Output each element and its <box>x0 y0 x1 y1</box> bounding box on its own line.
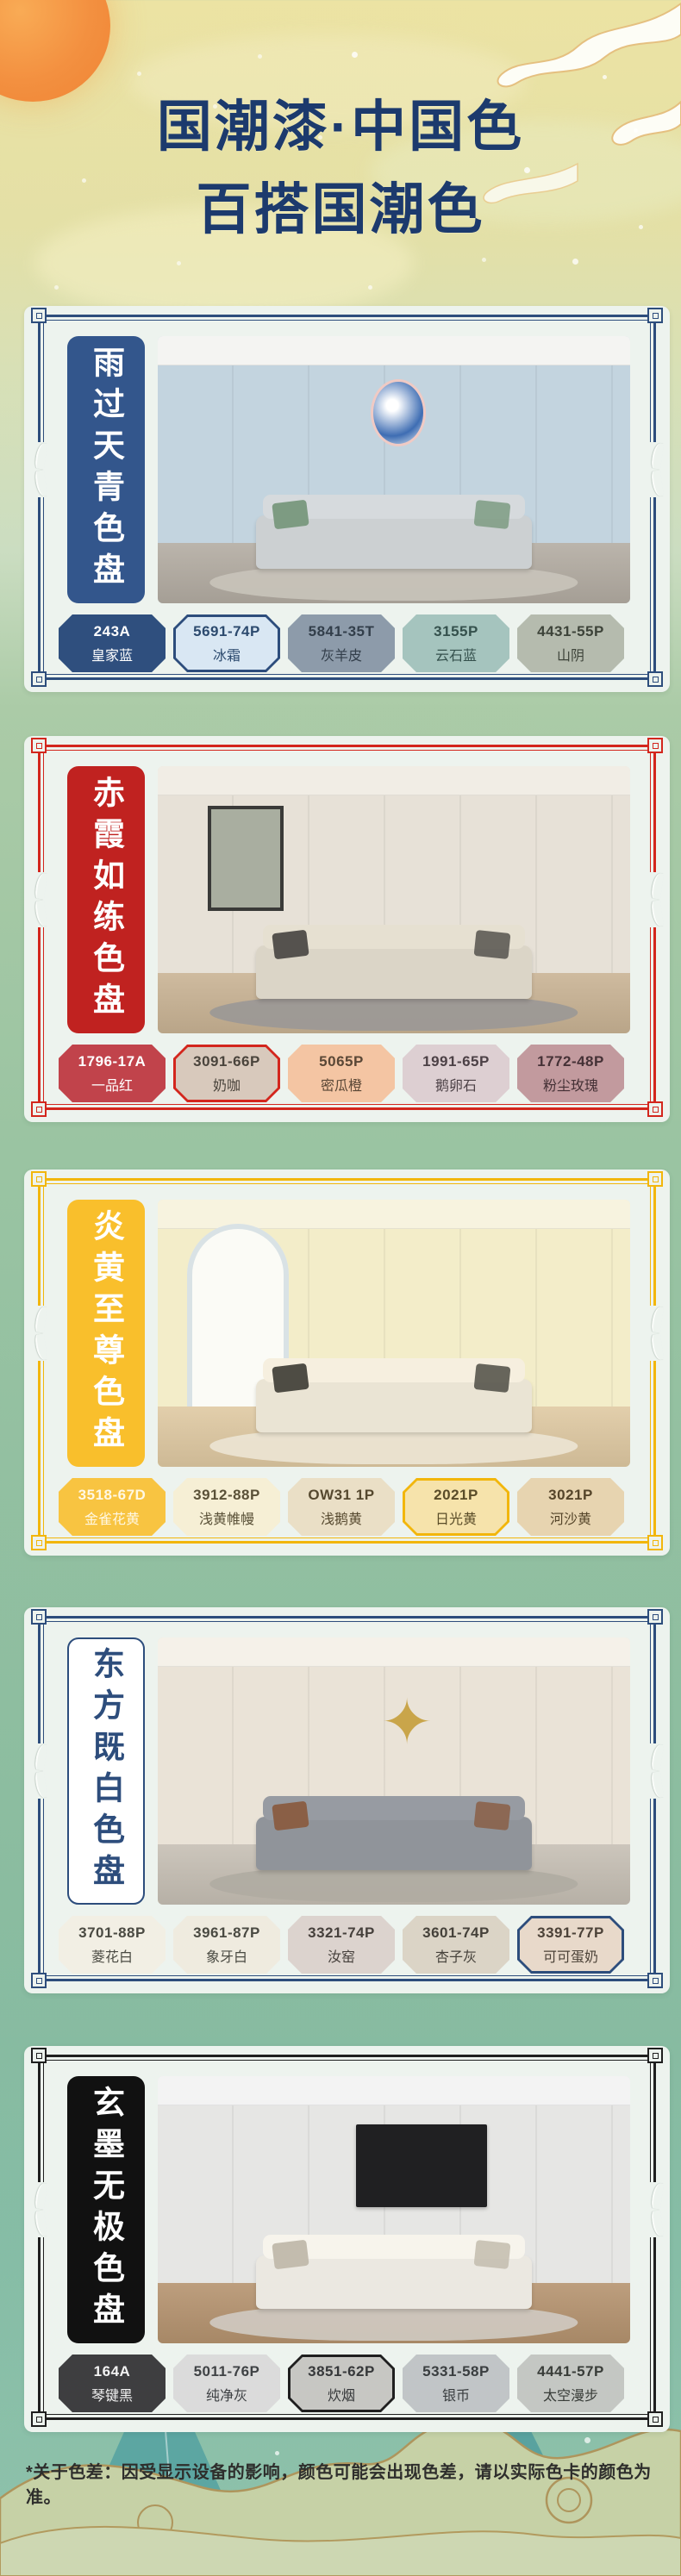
color-code: 4441-57P <box>537 2363 604 2380</box>
color-name: 山阴 <box>557 644 584 664</box>
wall-art <box>375 1691 439 1755</box>
sofa <box>256 1379 532 1432</box>
color-name: 粉尘玫瑰 <box>543 1074 598 1095</box>
palette-banner: 玄墨无极色盘 <box>67 2076 145 2343</box>
color-swatch: 3961-87P 象牙白 <box>173 1916 280 1974</box>
color-swatch: 3021P 河沙黄 <box>517 1478 624 1536</box>
color-swatch: 4441-57P 太空漫步 <box>517 2355 624 2412</box>
color-name: 可可蛋奶 <box>543 1945 598 1966</box>
color-swatch: 3155P 云石蓝 <box>403 614 509 672</box>
color-swatch-face: 3601-74P 杏子灰 <box>403 1916 509 1974</box>
color-name: 浅黄帷幔 <box>199 1507 254 1528</box>
color-swatch-face: 3961-87P 象牙白 <box>173 1916 280 1974</box>
color-swatch: 3912-88P 浅黄帷幔 <box>173 1478 280 1536</box>
frame-corner-icon <box>647 1171 663 1187</box>
color-code: 3912-88P <box>193 1487 260 1504</box>
rug <box>209 2305 578 2341</box>
color-name: 纯净灰 <box>206 2384 247 2404</box>
color-swatch: 164A 琴键黑 <box>59 2355 166 2412</box>
sofa <box>256 945 532 999</box>
frame-corner-icon <box>647 1973 663 1988</box>
color-swatch-face: 5691-74P 冰霜 <box>176 617 278 670</box>
wall-art <box>356 2124 487 2207</box>
color-swatch-face: 4431-55P 山阴 <box>517 614 624 672</box>
color-name: 云石蓝 <box>435 644 477 664</box>
frame-bracket-icon <box>33 872 45 927</box>
color-swatch-face: 5841-35T 灰羊皮 <box>288 614 395 672</box>
color-swatch-face: 3091-66P 奶咖 <box>176 1047 278 1100</box>
sofa <box>256 1817 532 1870</box>
frame-corner-icon <box>31 671 47 687</box>
frame-corner-icon <box>31 2048 47 2063</box>
color-name: 汝窑 <box>328 1945 355 1966</box>
swatch-row: 3701-88P 菱花白 3961-87P 象牙白 3321-74P 汝窑 36… <box>59 1916 624 1974</box>
color-name: 菱花白 <box>91 1945 133 1966</box>
color-swatch: 3391-77P 可可蛋奶 <box>517 1916 624 1974</box>
color-swatch: 1991-65P 鹅卵石 <box>403 1045 509 1102</box>
palette-banner: 东方既白色盘 <box>67 1637 145 1905</box>
palette-banner: 雨过天青色盘 <box>67 336 145 603</box>
color-code: 4431-55P <box>537 623 604 640</box>
color-swatch-face: 5331-58P 银币 <box>403 2355 509 2412</box>
color-code: 3961-87P <box>193 1924 260 1942</box>
color-swatch: 3518-67D 金雀花黄 <box>59 1478 166 1536</box>
frame-bracket-icon <box>649 2182 661 2237</box>
rug <box>209 1866 578 1902</box>
color-code: 3155P <box>434 623 478 640</box>
color-swatch: 5691-74P 冰霜 <box>173 614 280 672</box>
color-swatch: 3091-66P 奶咖 <box>173 1045 280 1102</box>
palette-card: 玄墨无极色盘 164A 琴键黑 5011-76P 纯净灰 3851-62P 炊烟… <box>24 2046 670 2432</box>
color-swatch: 5841-35T 灰羊皮 <box>288 614 395 672</box>
color-swatch-face: 3851-62P 炊烟 <box>291 2357 392 2410</box>
color-swatch-face: 1991-65P 鹅卵石 <box>403 1045 509 1102</box>
frame-corner-icon <box>647 2048 663 2063</box>
color-code: 3701-88P <box>78 1924 146 1942</box>
color-code: 5331-58P <box>422 2363 490 2380</box>
color-swatch-face: OW31 1P 浅鹅黄 <box>288 1478 395 1536</box>
page-title-line2: 百搭国潮色 <box>0 165 681 245</box>
rug <box>209 1428 578 1464</box>
color-swatch-face: 3518-67D 金雀花黄 <box>59 1478 166 1536</box>
palette-card: 炎黄至尊色盘 3518-67D 金雀花黄 3912-88P 浅黄帷幔 OW31 … <box>24 1169 670 1556</box>
color-swatch-face: 1796-17A 一品红 <box>59 1045 166 1102</box>
palette-card: 赤霞如练色盘 1796-17A 一品红 3091-66P 奶咖 5065P 密瓜… <box>24 736 670 1122</box>
color-code: 3601-74P <box>422 1924 490 1942</box>
swatch-row: 1796-17A 一品红 3091-66P 奶咖 5065P 密瓜橙 1991-… <box>59 1045 624 1102</box>
room-photo <box>158 336 630 603</box>
color-code: 1991-65P <box>422 1053 490 1070</box>
wall-art <box>208 806 284 911</box>
color-swatch: 2021P 日光黄 <box>403 1478 509 1536</box>
color-name: 日光黄 <box>435 1507 477 1528</box>
swatch-row: 243A 皇家蓝 5691-74P 冰霜 5841-35T 灰羊皮 3155P … <box>59 614 624 672</box>
palette-card: 雨过天青色盘 243A 皇家蓝 5691-74P 冰霜 5841-35T 灰羊皮… <box>24 306 670 692</box>
color-disclaimer: *关于色差：因受显示设备的影响，颜色可能会出现色差，请以实际色卡的颜色为准。 <box>26 2458 681 2508</box>
palette-card: 东方既白色盘 3701-88P 菱花白 3961-87P 象牙白 3321-74… <box>24 1607 670 1993</box>
color-code: 243A <box>94 623 131 640</box>
frame-corner-icon <box>31 1535 47 1550</box>
color-swatch: OW31 1P 浅鹅黄 <box>288 1478 395 1536</box>
color-name: 密瓜橙 <box>321 1074 362 1095</box>
rug <box>209 564 578 601</box>
color-swatch-face: 1772-48P 粉尘玫瑰 <box>517 1045 624 1102</box>
color-name: 奶咖 <box>213 1074 241 1095</box>
color-code: 3391-77P <box>537 1924 604 1942</box>
color-name: 象牙白 <box>206 1945 247 1966</box>
palette-banner: 炎黄至尊色盘 <box>67 1200 145 1467</box>
color-code: 3021P <box>548 1487 593 1504</box>
color-swatch: 1772-48P 粉尘玫瑰 <box>517 1045 624 1102</box>
color-swatch: 4431-55P 山阴 <box>517 614 624 672</box>
swatch-row: 3518-67D 金雀花黄 3912-88P 浅黄帷幔 OW31 1P 浅鹅黄 … <box>59 1478 624 1536</box>
frame-corner-icon <box>31 1171 47 1187</box>
color-name: 金雀花黄 <box>84 1507 140 1528</box>
frame-bracket-icon <box>33 2182 45 2237</box>
color-code: OW31 1P <box>308 1487 374 1504</box>
color-swatch-face: 4441-57P 太空漫步 <box>517 2355 624 2412</box>
color-swatch-face: 3701-88P 菱花白 <box>59 1916 166 1974</box>
frame-corner-icon <box>647 671 663 687</box>
frame-bracket-icon <box>33 442 45 497</box>
color-code: 5691-74P <box>193 623 260 640</box>
color-name: 杏子灰 <box>435 1945 477 1966</box>
palette-banner: 赤霞如练色盘 <box>67 766 145 1033</box>
color-name: 一品红 <box>91 1074 133 1095</box>
frame-bracket-icon <box>33 1306 45 1361</box>
frame-corner-icon <box>647 2411 663 2427</box>
frame-bracket-icon <box>33 1743 45 1799</box>
frame-corner-icon <box>31 2411 47 2427</box>
color-swatch-face: 243A 皇家蓝 <box>59 614 166 672</box>
color-name: 太空漫步 <box>543 2384 598 2404</box>
color-code: 3091-66P <box>193 1053 260 1070</box>
color-name: 灰羊皮 <box>321 644 362 664</box>
frame-bracket-icon <box>649 1306 661 1361</box>
room-photo <box>158 1637 630 1905</box>
color-swatch: 5011-76P 纯净灰 <box>173 2355 280 2412</box>
color-code: 3321-74P <box>308 1924 375 1942</box>
palette-title: 玄墨无极色盘 <box>91 2086 122 2334</box>
color-swatch-face: 3021P 河沙黄 <box>517 1478 624 1536</box>
color-name: 琴键黑 <box>91 2384 133 2404</box>
color-swatch: 5331-58P 银币 <box>403 2355 509 2412</box>
color-name: 银币 <box>442 2384 470 2404</box>
color-swatch-face: 3321-74P 汝窑 <box>288 1916 395 1974</box>
color-swatch-face: 5065P 密瓜橙 <box>288 1045 395 1102</box>
ceiling <box>158 336 630 365</box>
wall-art <box>371 379 426 446</box>
color-code: 5841-35T <box>309 623 375 640</box>
color-swatch: 3321-74P 汝窑 <box>288 1916 395 1974</box>
color-name: 浅鹅黄 <box>321 1507 362 1528</box>
rug <box>209 995 578 1031</box>
color-swatch: 243A 皇家蓝 <box>59 614 166 672</box>
ceiling <box>158 1637 630 1667</box>
color-swatch-face: 164A 琴键黑 <box>59 2355 166 2412</box>
swatch-row: 164A 琴键黑 5011-76P 纯净灰 3851-62P 炊烟 5331-5… <box>59 2355 624 2412</box>
palette-title: 雨过天青色盘 <box>91 346 122 594</box>
color-code: 3851-62P <box>308 2363 375 2380</box>
frame-corner-icon <box>31 1101 47 1117</box>
ceiling <box>158 766 630 795</box>
color-code: 3518-67D <box>78 1487 147 1504</box>
frame-corner-icon <box>647 1101 663 1117</box>
color-swatch: 3851-62P 炊烟 <box>288 2355 395 2412</box>
color-code: 1796-17A <box>78 1053 147 1070</box>
frame-corner-icon <box>647 738 663 753</box>
frame-corner-icon <box>31 738 47 753</box>
room-photo <box>158 1200 630 1467</box>
color-swatch-face: 2021P 日光黄 <box>405 1481 507 1533</box>
room-photo <box>158 2076 630 2343</box>
ceiling <box>158 2076 630 2105</box>
frame-bracket-icon <box>649 442 661 497</box>
palette-title: 东方既白色盘 <box>91 1647 122 1895</box>
page-title-line1: 国潮漆·中国色 <box>0 83 681 162</box>
color-code: 5065P <box>319 1053 364 1070</box>
frame-corner-icon <box>31 1973 47 1988</box>
color-code: 164A <box>94 2363 131 2380</box>
color-swatch: 1796-17A 一品红 <box>59 1045 166 1102</box>
color-name: 冰霜 <box>213 644 241 664</box>
color-swatch-face: 3391-77P 可可蛋奶 <box>520 1918 622 1971</box>
color-swatch: 3701-88P 菱花白 <box>59 1916 166 1974</box>
color-code: 5011-76P <box>194 2363 260 2380</box>
color-swatch-face: 5011-76P 纯净灰 <box>173 2355 280 2412</box>
sofa <box>256 2255 532 2309</box>
color-swatch-face: 3912-88P 浅黄帷幔 <box>173 1478 280 1536</box>
palette-title: 赤霞如练色盘 <box>91 776 122 1024</box>
frame-corner-icon <box>647 1535 663 1550</box>
frame-corner-icon <box>31 1609 47 1625</box>
color-name: 炊烟 <box>328 2384 355 2404</box>
frame-corner-icon <box>647 1609 663 1625</box>
frame-corner-icon <box>647 308 663 323</box>
color-code: 1772-48P <box>537 1053 604 1070</box>
color-swatch: 5065P 密瓜橙 <box>288 1045 395 1102</box>
sofa <box>256 515 532 569</box>
room-photo <box>158 766 630 1033</box>
color-name: 河沙黄 <box>550 1507 591 1528</box>
color-name: 鹅卵石 <box>435 1074 477 1095</box>
color-name: 皇家蓝 <box>91 644 133 664</box>
frame-bracket-icon <box>649 872 661 927</box>
color-swatch: 3601-74P 杏子灰 <box>403 1916 509 1974</box>
sparkle-dots <box>0 0 3 3</box>
color-swatch-face: 3155P 云石蓝 <box>403 614 509 672</box>
color-code: 2021P <box>434 1487 478 1504</box>
frame-corner-icon <box>31 308 47 323</box>
palette-title: 炎黄至尊色盘 <box>91 1209 122 1457</box>
frame-bracket-icon <box>649 1743 661 1799</box>
